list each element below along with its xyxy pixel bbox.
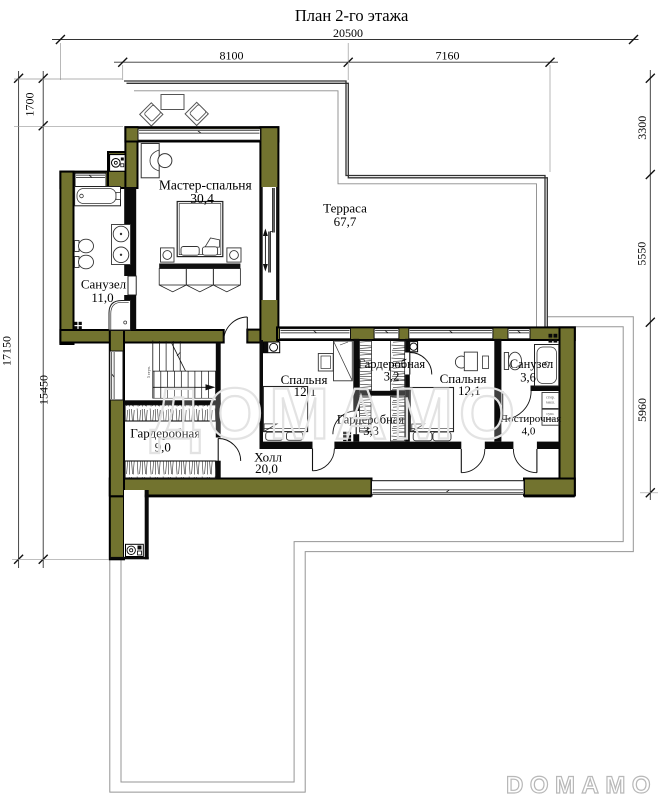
svg-text:7160: 7160 xyxy=(436,49,460,63)
svg-text:1700: 1700 xyxy=(23,93,37,117)
svg-text:67,7: 67,7 xyxy=(334,214,357,229)
svg-text:30,4: 30,4 xyxy=(190,191,214,206)
svg-text:11,0: 11,0 xyxy=(91,290,113,305)
svg-text:17150: 17150 xyxy=(0,336,14,366)
svg-text:15450: 15450 xyxy=(37,375,51,405)
svg-text:20,0: 20,0 xyxy=(255,461,278,476)
svg-text:маш.: маш. xyxy=(546,400,555,405)
svg-text:5550: 5550 xyxy=(634,242,648,266)
svg-text:ДОМАМО: ДОМАМО xyxy=(150,375,521,455)
svg-text:4,0: 4,0 xyxy=(522,426,536,438)
svg-text:3,6: 3,6 xyxy=(520,371,536,385)
svg-text:5960: 5960 xyxy=(635,398,649,422)
svg-text:План 2-го этажа: План 2-го этажа xyxy=(295,6,409,25)
svg-text:Санузел: Санузел xyxy=(510,357,554,371)
svg-text:3300: 3300 xyxy=(635,116,649,140)
svg-text:DOMAMO: DOMAMO xyxy=(506,772,657,799)
svg-text:20500: 20500 xyxy=(333,26,363,40)
svg-text:8100: 8100 xyxy=(220,49,244,63)
